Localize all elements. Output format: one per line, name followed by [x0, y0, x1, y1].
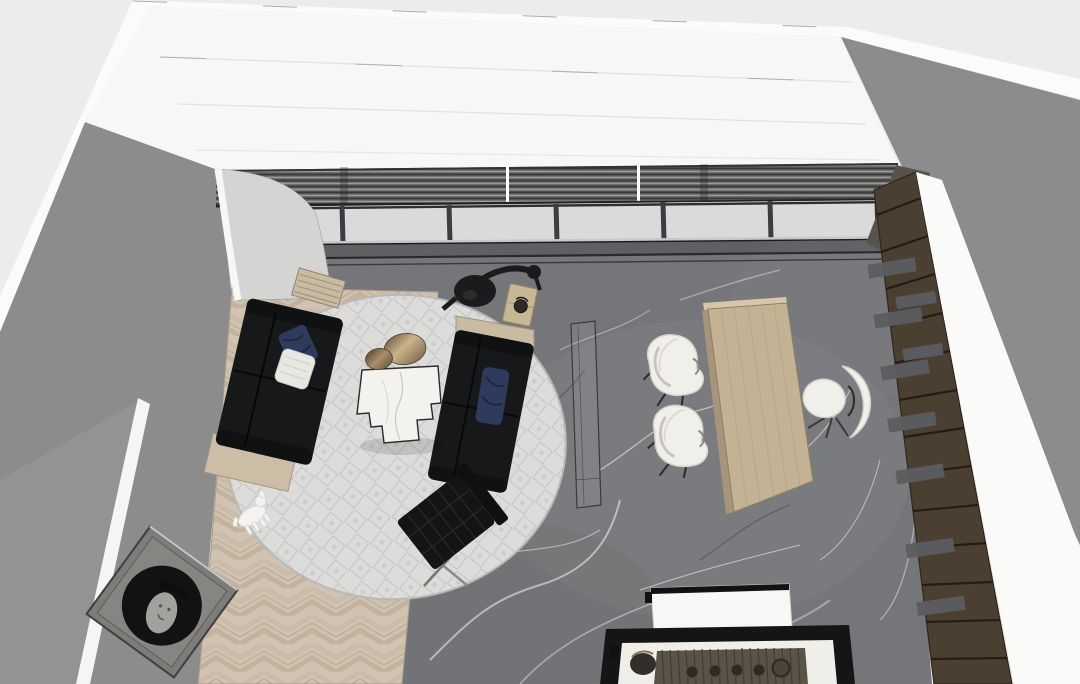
- render-stage: [0, 0, 1080, 684]
- glass-console[interactable]: [571, 321, 601, 508]
- white-bench[interactable]: [645, 584, 792, 631]
- black-frame-display-table[interactable]: [600, 625, 855, 684]
- back-wall: [85, 0, 898, 170]
- marble-coffee-table[interactable]: [357, 366, 444, 455]
- viewport-canvas[interactable]: [0, 0, 1080, 684]
